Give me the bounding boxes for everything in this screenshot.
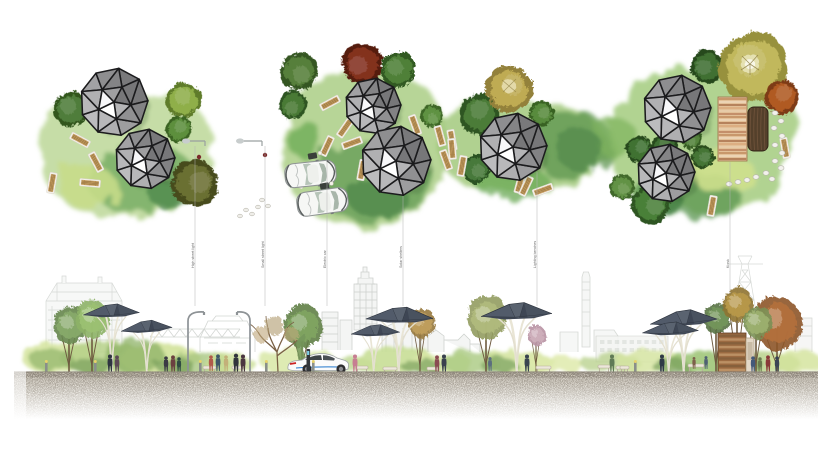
svg-text:Kiosk: Kiosk [726, 259, 730, 268]
svg-text:Electric car: Electric car [323, 249, 327, 268]
svg-text:Small street light: Small street light [261, 241, 265, 268]
svg-text:Lighting benches: Lighting benches [533, 241, 537, 268]
svg-text:Solar shelters: Solar shelters [399, 246, 403, 268]
svg-text:High street light: High street light [191, 243, 195, 268]
